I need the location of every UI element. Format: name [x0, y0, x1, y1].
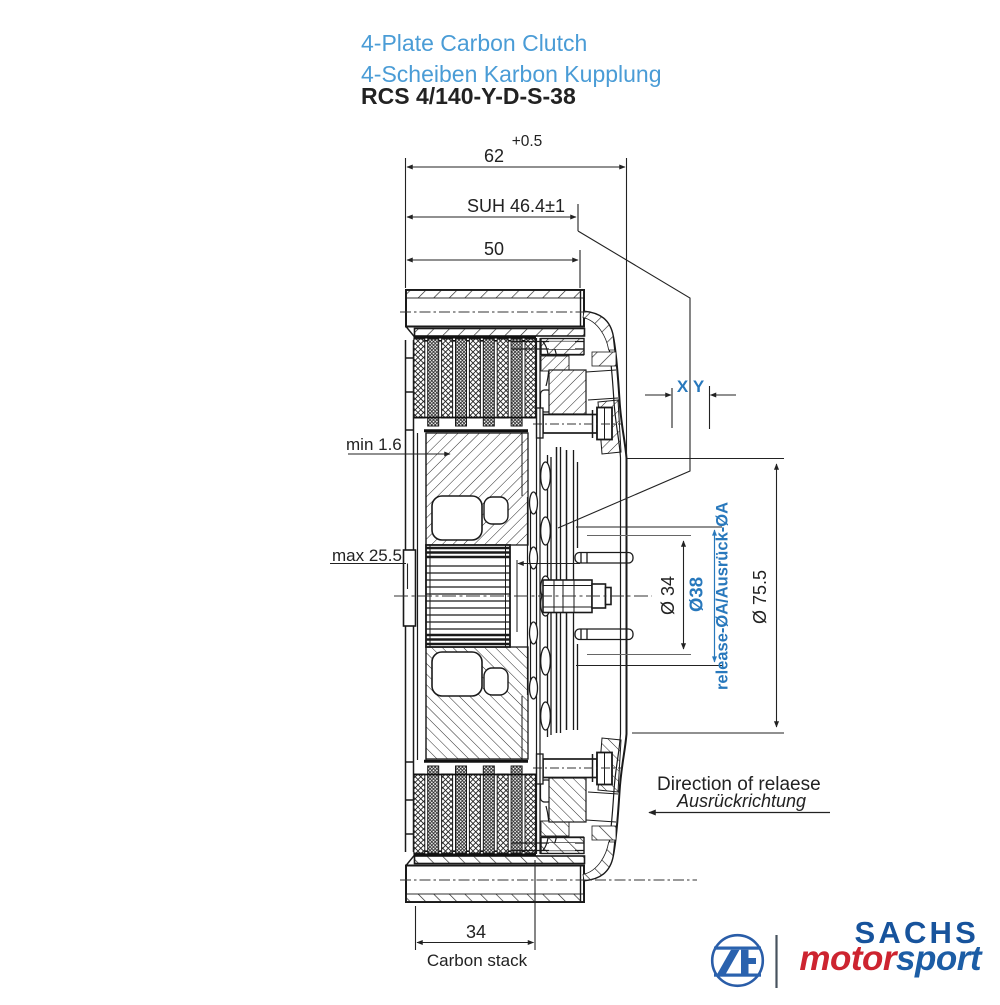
svg-text:Ø 75.5: Ø 75.5 [750, 570, 770, 624]
svg-text:Ausrückrichtung: Ausrückrichtung [676, 791, 806, 811]
svg-text:50: 50 [484, 239, 504, 259]
svg-text:X: X [677, 377, 689, 396]
svg-text:62: 62 [484, 146, 504, 166]
svg-text:34: 34 [466, 922, 486, 942]
svg-text:Carbon stack: Carbon stack [427, 951, 528, 970]
svg-text:RCS 4/140-Y-D-S-38: RCS 4/140-Y-D-S-38 [361, 83, 576, 109]
svg-text:max 25.5: max 25.5 [332, 546, 402, 565]
svg-text:Ø38: Ø38 [686, 577, 707, 612]
svg-text:Y: Y [693, 377, 705, 396]
svg-text:SUH 46.4±1: SUH 46.4±1 [467, 196, 565, 216]
svg-text:motorsport: motorsport [799, 939, 983, 978]
svg-text:Ø 34: Ø 34 [658, 576, 678, 615]
svg-text:release-ØA/Ausrück-ØA: release-ØA/Ausrück-ØA [714, 502, 732, 690]
svg-text:4-Plate Carbon Clutch: 4-Plate Carbon Clutch [361, 30, 587, 56]
svg-text:min 1.6: min 1.6 [346, 435, 402, 454]
svg-text:+0.5: +0.5 [512, 133, 543, 150]
